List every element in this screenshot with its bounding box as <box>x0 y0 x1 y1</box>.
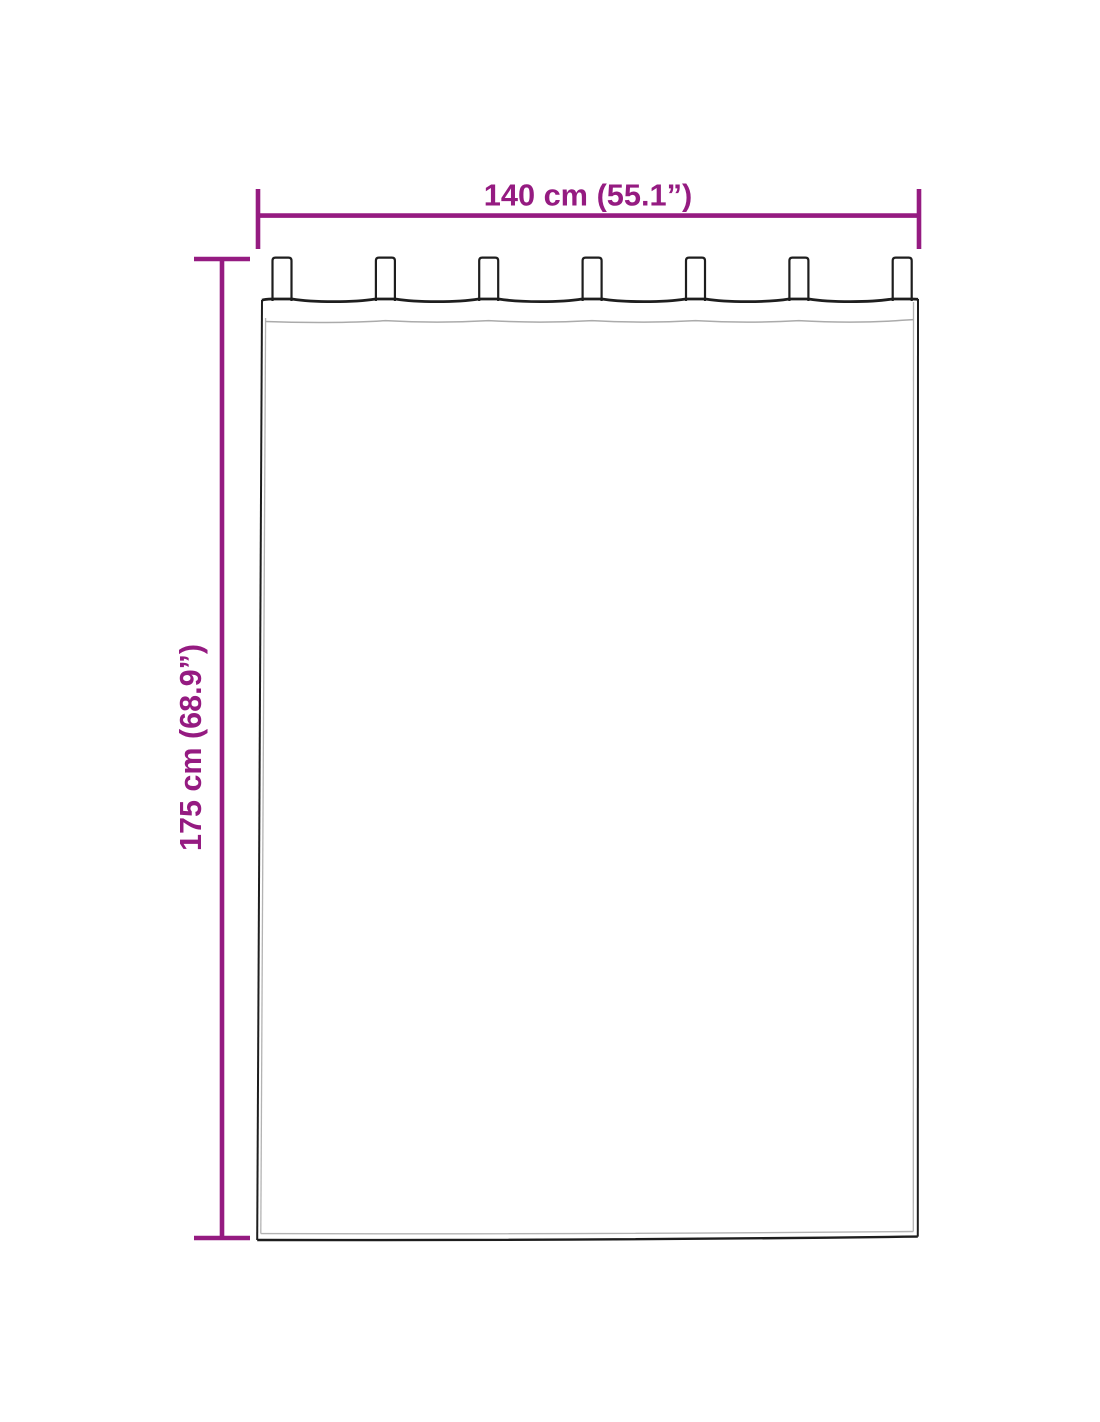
svg-text:140 cm (55.1”): 140 cm (55.1”) <box>484 178 693 213</box>
svg-text:175 cm (68.9”): 175 cm (68.9”) <box>173 644 208 851</box>
